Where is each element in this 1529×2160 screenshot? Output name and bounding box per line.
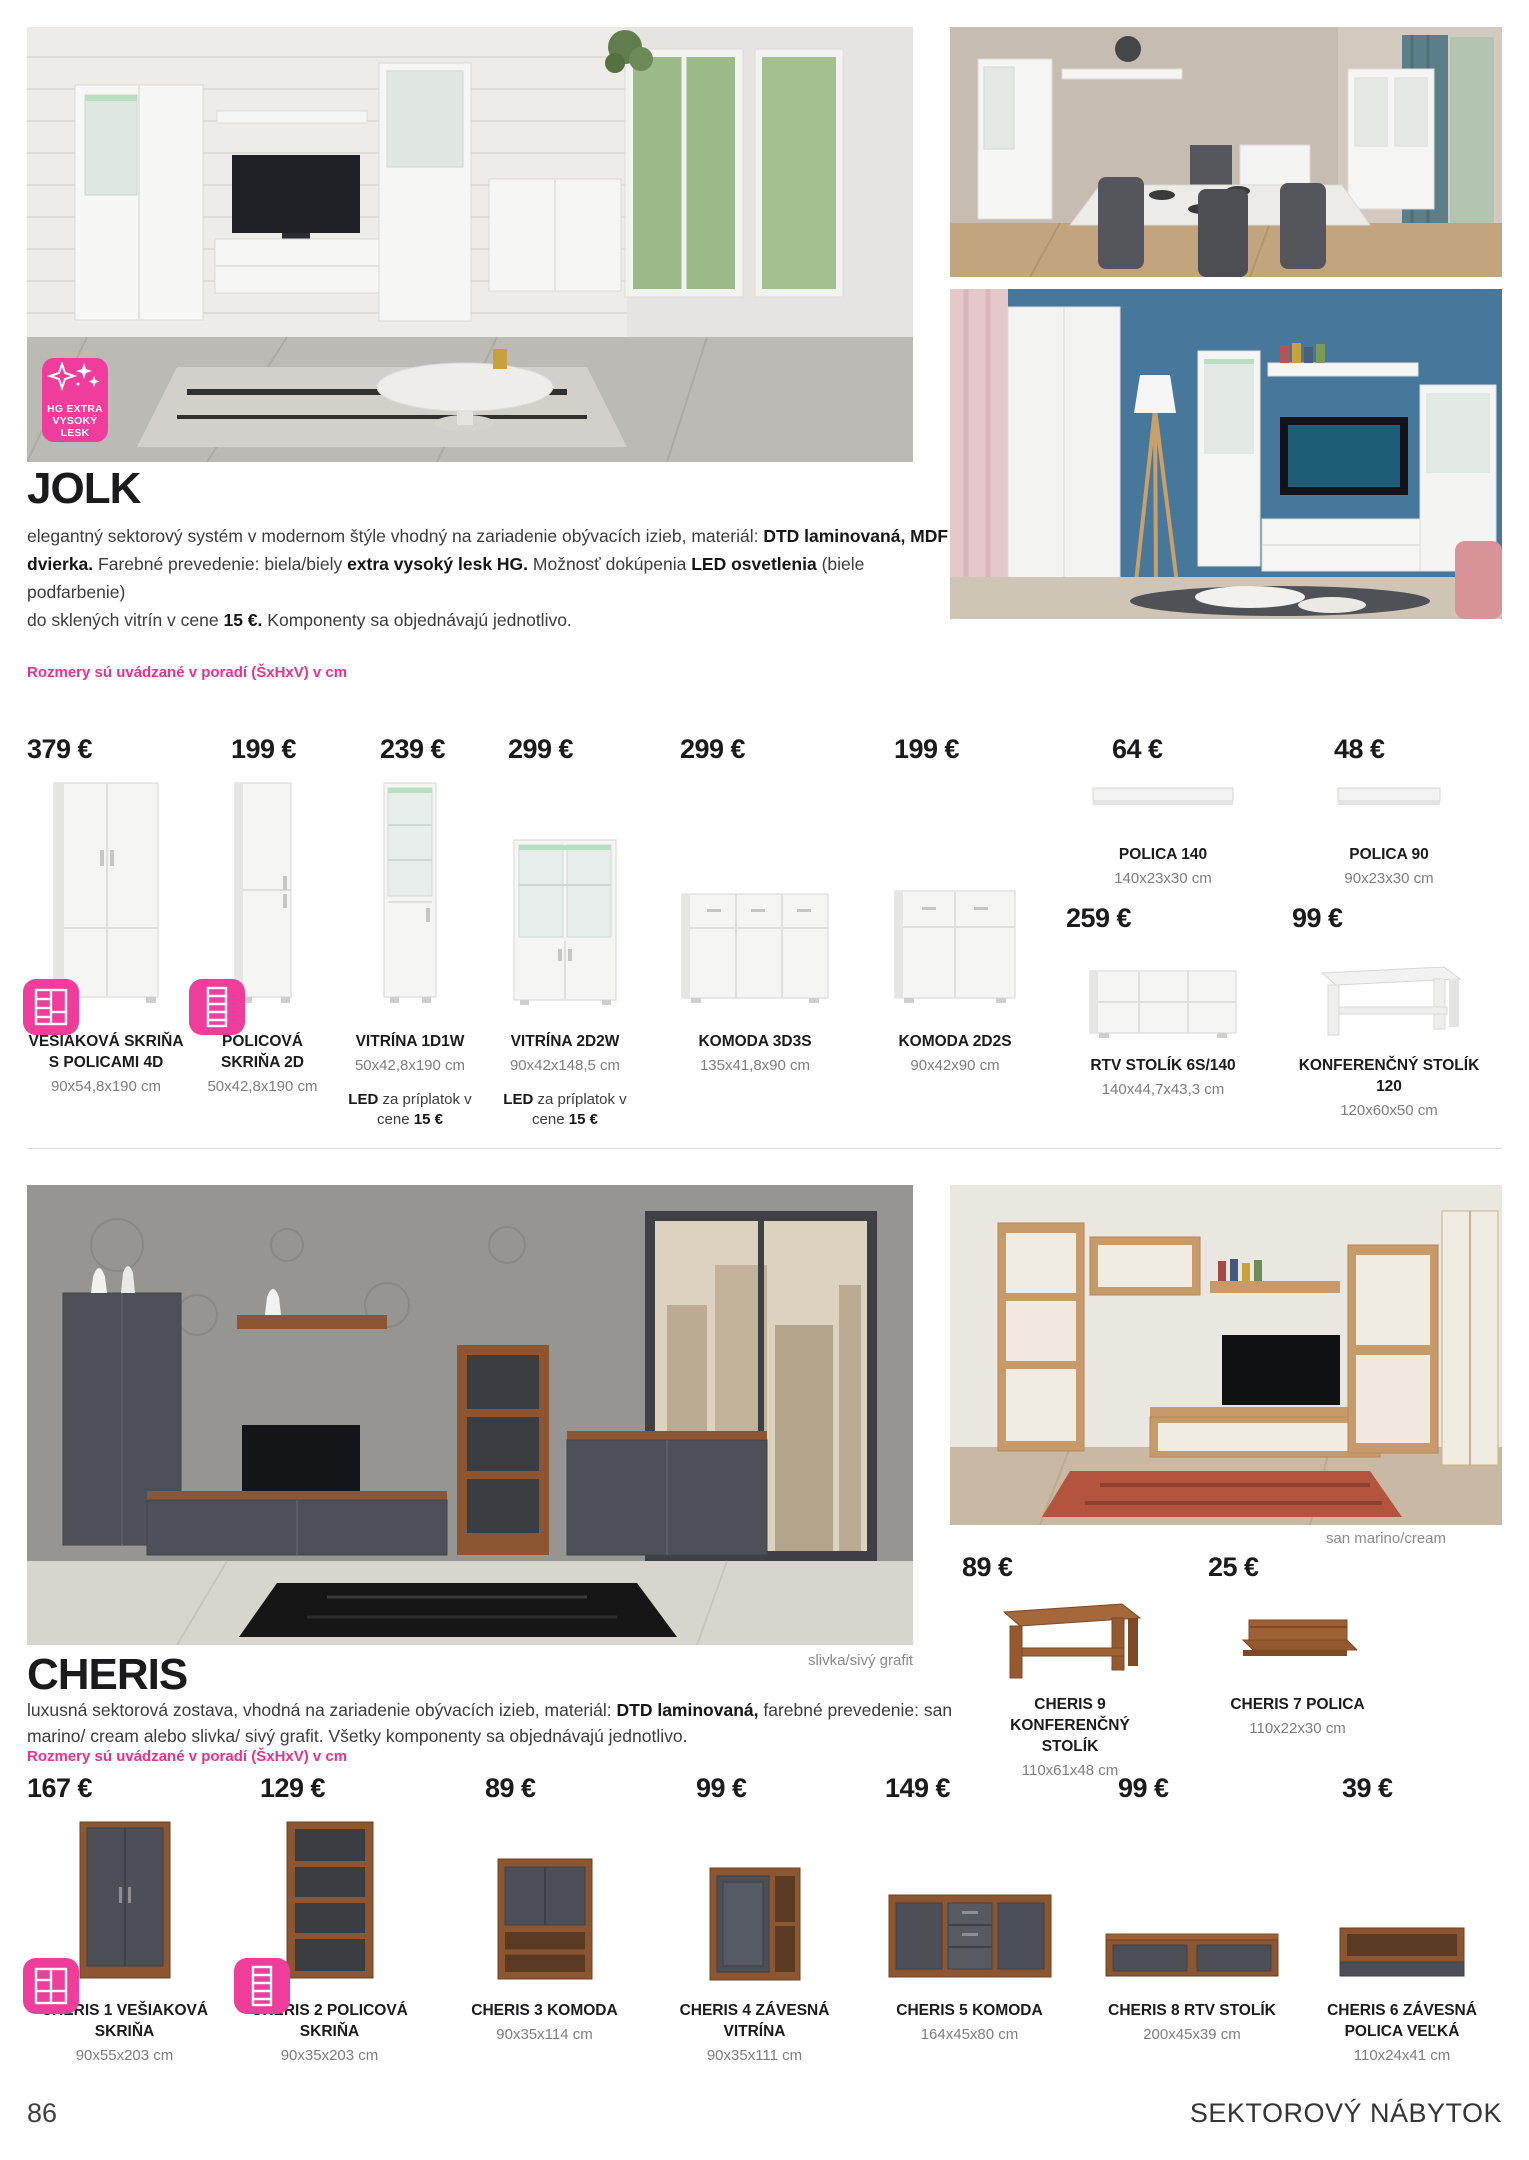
- product-dimensions: 50x42,8x190 cm: [207, 1076, 317, 1097]
- cheris-room-photo-sanmarino: [950, 1185, 1502, 1525]
- product-photo-cheris9-table: [996, 1596, 1144, 1684]
- product-price: 239 €: [380, 734, 445, 766]
- product-card-polica-90-table: 48 € POLICA 90 90x23x30 cm 99 € KON: [1276, 734, 1502, 1121]
- product-name: KOMODA 3D3S: [698, 1031, 811, 1052]
- product-price: 199 €: [894, 734, 959, 766]
- product-card-cheris-6: 39 € CHERIS 6 ZÁVESNÁ POLICA VEĽKÁ 110x2…: [1302, 1773, 1502, 2066]
- product-dimensions: 90x23x30 cm: [1344, 868, 1433, 889]
- product-photo-cheris7-shelf: [1239, 1614, 1357, 1664]
- product-price: 25 €: [1208, 1552, 1259, 1584]
- product-dimensions: 90x35x203 cm: [281, 2045, 379, 2066]
- product-dimensions: 200x45x39 cm: [1143, 2024, 1241, 2045]
- cheris-description: luxusná sektorová zostava, vhodná na zar…: [27, 1697, 1027, 1749]
- hg-badge-line3: LESK: [42, 427, 108, 439]
- product-name: VITRÍNA 2D2W: [511, 1031, 620, 1052]
- product-card-polica-140-rtv: 64 € POLICA 140 140x23x30 cm 259 €: [1050, 734, 1276, 1100]
- product-photo-komoda-2d2s: [892, 887, 1018, 1005]
- product-name: VEŠIAKOVÁ SKRIŇA S POLICAMI 4D: [27, 1031, 185, 1073]
- product-photo-cheris2-bookcase: [284, 1819, 376, 1984]
- cheris-caption-sanmarino: san marino/cream: [950, 1530, 1446, 1547]
- product-card-cheris-5: 149 € CHERIS 5 KOMODA 164x45x80 cm: [857, 1773, 1082, 2045]
- catalog-page: HG EXTRA VYSOKÝ LESK JOLK elegantný sekt…: [0, 0, 1529, 2160]
- product-price: 89 €: [962, 1552, 1013, 1584]
- product-price: 149 €: [885, 1773, 950, 1805]
- jolk-room-photo-dining: [950, 27, 1502, 277]
- product-dimensions: 110x24x41 cm: [1354, 2045, 1450, 2066]
- product-name: POLICA 140: [1119, 844, 1207, 865]
- product-dimensions: 140x44,7x43,3 cm: [1102, 1079, 1225, 1100]
- product-photo-vitrina-2d2w: [510, 837, 620, 1005]
- section-divider: [27, 1148, 1502, 1149]
- product-card-cheris-3: 89 € CHERIS 3 KOMODA 90x35x114 cm: [437, 1773, 652, 2045]
- product-photo-polica-140: [1088, 780, 1238, 812]
- product-name: CHERIS 4 ZÁVESNÁ VITRÍNA: [666, 2000, 844, 2042]
- product-name: CHERIS 7 POLICA: [1230, 1694, 1364, 1715]
- product-name: KONFERENČNÝ STOLÍK 120: [1297, 1055, 1482, 1097]
- shelf-interior-icon: [234, 1958, 290, 2014]
- product-photo-cheris4-vitrina: [707, 1864, 803, 1984]
- product-card-cheris-2: 129 € CHERIS 2: [222, 1773, 437, 2066]
- product-photo-polica-90: [1333, 780, 1445, 812]
- product-photo-cheris5-komoda: [886, 1889, 1054, 1984]
- product-price: 48 €: [1334, 734, 1385, 766]
- product-card-cheris-4: 99 € CHERIS 4 ZÁVESNÁ VITRÍNA 90x35x111 …: [652, 1773, 857, 2066]
- shelf-interior-icon: [189, 979, 245, 1035]
- product-card-vitrina-1d1w: 239 € VITRÍNA 1D1W 50x42,8x190 cm LED za…: [340, 734, 480, 1130]
- product-card-cheris-7: 25 € CHERIS 7 POLICA 110x22x30 cm: [1190, 1552, 1405, 1739]
- jolk-section-title: JOLK: [27, 464, 140, 514]
- product-card-policova-skrina: 199 € POLICOVÁ SK: [185, 734, 340, 1097]
- jolk-description: elegantný sektorový systém v modernom št…: [27, 522, 967, 634]
- product-photo-cheris1-wardrobe: [77, 1819, 173, 1984]
- product-price: 99 €: [696, 1773, 747, 1805]
- cheris-room-photo-grey: [27, 1185, 913, 1645]
- hg-badge-line2: VYSOKÝ: [42, 415, 108, 427]
- product-photo-vitrina-1d1w: [380, 780, 440, 1005]
- product-price: 99 €: [1118, 1773, 1169, 1805]
- product-photo-wardrobe-4d: [50, 780, 162, 1005]
- product-card-cheris-1: 167 € CHERIS 1: [27, 1773, 222, 2066]
- product-card-vitrina-2d2w: 299 € VITRÍNA 2D2W 90x42x148,5 cm LED za…: [480, 734, 650, 1130]
- product-name: CHERIS 8 RTV STOLÍK: [1108, 2000, 1276, 2021]
- product-price: 299 €: [680, 734, 745, 766]
- product-name: RTV STOLÍK 6S/140: [1090, 1055, 1235, 1076]
- product-name: POLICOVÁ SKRIŇA 2D: [203, 1031, 323, 1073]
- sparkles-icon: [42, 362, 108, 398]
- wardrobe-interior-icon: [23, 979, 79, 1035]
- product-dimensions: 90x35x114 cm: [496, 2024, 592, 2045]
- page-number: 86: [27, 2098, 57, 2129]
- product-price: 199 €: [231, 734, 296, 766]
- hg-extra-gloss-badge: HG EXTRA VYSOKÝ LESK: [42, 358, 108, 442]
- product-card-cheris-8: 99 € CHERIS 8 RTV STOLÍK 200x45x39 cm: [1082, 1773, 1302, 2045]
- led-surcharge-note: LED za príplatok v cene 15 €: [340, 1090, 480, 1130]
- cheris-size-note: Rozmery sú uvádzané v poradí (ŠxHxV) v c…: [27, 1748, 347, 1765]
- jolk-room-photo-main: [27, 27, 913, 462]
- cheris-product-row: 167 € CHERIS 1: [27, 1773, 1502, 2066]
- product-dimensions: 90x42x90 cm: [910, 1055, 999, 1076]
- product-dimensions: 120x60x50 cm: [1340, 1100, 1438, 1121]
- product-dimensions: 90x35x111 cm: [707, 2045, 802, 2066]
- product-photo-policova-skrina-2d: [231, 780, 295, 1005]
- product-name: KOMODA 2D2S: [898, 1031, 1011, 1052]
- product-dimensions: 135x41,8x90 cm: [700, 1055, 810, 1076]
- product-name: POLICA 90: [1349, 844, 1429, 865]
- product-dimensions: 110x22x30 cm: [1249, 1718, 1345, 1739]
- product-photo-rtv-stolik: [1087, 967, 1239, 1041]
- product-card-vesiakova-skrina: 379 €: [27, 734, 185, 1097]
- jolk-product-row: 379 €: [27, 734, 1502, 1130]
- product-card-komoda-3d3s: 299 € KOMODA 3D3S 135x41,8x90 cm: [650, 734, 860, 1076]
- product-photo-komoda-3d3s: [679, 890, 831, 1005]
- product-price: 64 €: [1112, 734, 1163, 766]
- product-price: 299 €: [508, 734, 573, 766]
- product-dimensions: 140x23x30 cm: [1114, 868, 1212, 889]
- product-name: CHERIS 3 KOMODA: [471, 2000, 617, 2021]
- product-dimensions: 90x42x148,5 cm: [510, 1055, 620, 1076]
- product-price: 89 €: [485, 1773, 536, 1805]
- hg-badge-line1: HG EXTRA: [42, 403, 108, 415]
- product-name: CHERIS 5 KOMODA: [896, 2000, 1042, 2021]
- footer-section-name: SEKTOROVÝ NÁBYTOK: [1190, 2098, 1502, 2129]
- product-price: 129 €: [260, 1773, 325, 1805]
- wardrobe-interior-icon: [23, 1958, 79, 2014]
- product-price: 379 €: [27, 734, 92, 766]
- product-photo-cheris6-polica: [1337, 1922, 1467, 1984]
- product-photo-konferencny-stolik: [1314, 959, 1464, 1041]
- led-surcharge-note: LED za príplatok v cene 15 €: [490, 1090, 640, 1130]
- jolk-room-photo-blue: [950, 289, 1502, 619]
- cheris-section-title: CHERIS: [27, 1650, 187, 1700]
- product-card-komoda-2d2s: 199 € KOMODA 2D2S 90x42x90 cm: [860, 734, 1050, 1076]
- product-price: 167 €: [27, 1773, 92, 1805]
- jolk-size-note: Rozmery sú uvádzané v poradí (ŠxHxV) v c…: [27, 664, 347, 681]
- product-name: CHERIS 6 ZÁVESNÁ POLICA VEĽKÁ: [1313, 2000, 1491, 2042]
- product-price: 99 €: [1292, 903, 1343, 935]
- product-price: 259 €: [1066, 903, 1131, 935]
- product-dimensions: 90x55x203 cm: [76, 2045, 174, 2066]
- product-dimensions: 90x54,8x190 cm: [51, 1076, 161, 1097]
- product-name: VITRÍNA 1D1W: [356, 1031, 465, 1052]
- product-photo-cheris3-komoda: [495, 1854, 595, 1984]
- cheris-mid-product-row: 89 € CHERIS 9 KONFERENČNÝ STOLÍK 110x61x…: [950, 1552, 1502, 1781]
- product-dimensions: 50x42,8x190 cm: [355, 1055, 465, 1076]
- product-photo-cheris8-rtv: [1103, 1926, 1281, 1984]
- product-dimensions: 164x45x80 cm: [921, 2024, 1019, 2045]
- product-price: 39 €: [1342, 1773, 1393, 1805]
